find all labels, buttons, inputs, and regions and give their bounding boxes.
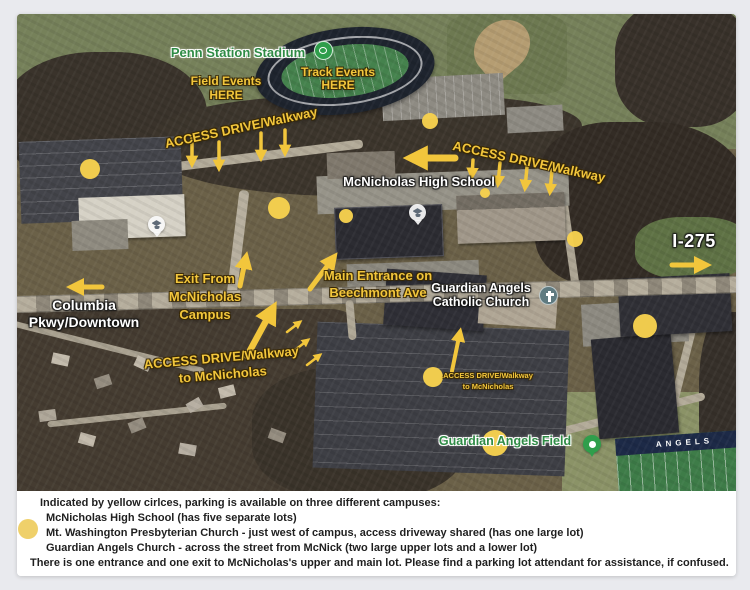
guardian-angels-football-field: ANGELS [615, 429, 736, 491]
parking-circle [339, 209, 353, 223]
main-entrance-line1: Main Entrance on [324, 267, 432, 284]
parking-circle [480, 188, 490, 198]
legend-line-5: There is one entrance and one exit to Mc… [30, 557, 729, 569]
columbia-line1: Columbia [29, 297, 139, 314]
parking-circle [422, 113, 438, 129]
track-stadium-icon [314, 41, 333, 60]
label-i275: I-275 [672, 231, 716, 252]
parking-circle [567, 231, 583, 247]
school-marker-mcnicholas [409, 204, 426, 221]
parking-lot-top-small [506, 105, 563, 134]
track-events-line2: HERE [301, 79, 375, 92]
label-mcnicholas-high-school: McNicholas High School [343, 174, 495, 189]
label-field-events: Field Events HERE [191, 74, 262, 102]
exit-line2: McNicholas [169, 288, 241, 306]
exit-line3: Campus [169, 306, 241, 324]
endzone-text: ANGELS [656, 436, 714, 449]
graduation-cap-base [154, 226, 159, 229]
guardian-field-pin [583, 435, 601, 453]
parking-circle [80, 159, 100, 179]
parking-circle [633, 314, 657, 338]
building-mcnicholas-east [456, 192, 566, 244]
legend-line-3: Mt. Washington Presbyterian Church - jus… [46, 527, 584, 539]
legend-line-2: McNicholas High School (has five separat… [46, 512, 297, 524]
legend-line-1: Indicated by yellow cirlces, parking is … [40, 497, 440, 509]
school-marker-mt-washington [148, 216, 165, 233]
main-entrance-line2: Beechmont Ave [324, 284, 432, 301]
track-oval-glyph [319, 47, 327, 54]
church-line2: Catholic Church [431, 295, 531, 309]
label-track-events: Track Events HERE [301, 66, 375, 92]
parking-circle [268, 197, 290, 219]
access-small-line2: to McNicholas [443, 381, 533, 392]
label-main-entrance: Main Entrance on Beechmont Ave [324, 267, 432, 301]
label-columbia-pkwy: Columbia Pkwy/Downtown [29, 297, 139, 331]
label-penn-station-stadium: Penn Station Stadium [171, 45, 305, 60]
terrain-trees-top-right [615, 14, 736, 127]
house [38, 409, 56, 422]
columbia-line2: Pkwy/Downtown [29, 314, 139, 331]
exit-line1: Exit From [169, 270, 241, 288]
access-small-line1: ACCESS DRIVE/Walkway [443, 370, 533, 381]
legend-line-4: Guardian Angels Church - across the stre… [46, 542, 537, 554]
legend-panel: Indicated by yellow cirlces, parking is … [17, 491, 736, 576]
label-access-drive-small: ACCESS DRIVE/Walkway to McNicholas [443, 370, 533, 392]
cross-icon-bar [546, 293, 554, 296]
parking-circle [423, 367, 443, 387]
pin-dot-icon [589, 441, 596, 448]
parking-lot-guardian-main [313, 322, 570, 477]
building-guardian-school [591, 333, 679, 440]
church-line1: Guardian Angels [431, 281, 531, 295]
legend-yellow-circle [18, 519, 38, 539]
field-events-line2: HERE [191, 88, 262, 102]
label-exit-from-campus: Exit From McNicholas Campus [169, 270, 241, 324]
satellite-map: ANGELS [17, 14, 736, 491]
graduation-cap-base [415, 214, 420, 217]
building-mt-washington-wing [71, 219, 128, 251]
label-guardian-angels-field: Guardian Angels Field [439, 434, 571, 448]
church-marker [539, 286, 558, 305]
flyer-card: ANGELS [17, 14, 736, 576]
field-events-line1: Field Events [191, 74, 262, 88]
label-guardian-angels-church: Guardian Angels Catholic Church [431, 281, 531, 309]
